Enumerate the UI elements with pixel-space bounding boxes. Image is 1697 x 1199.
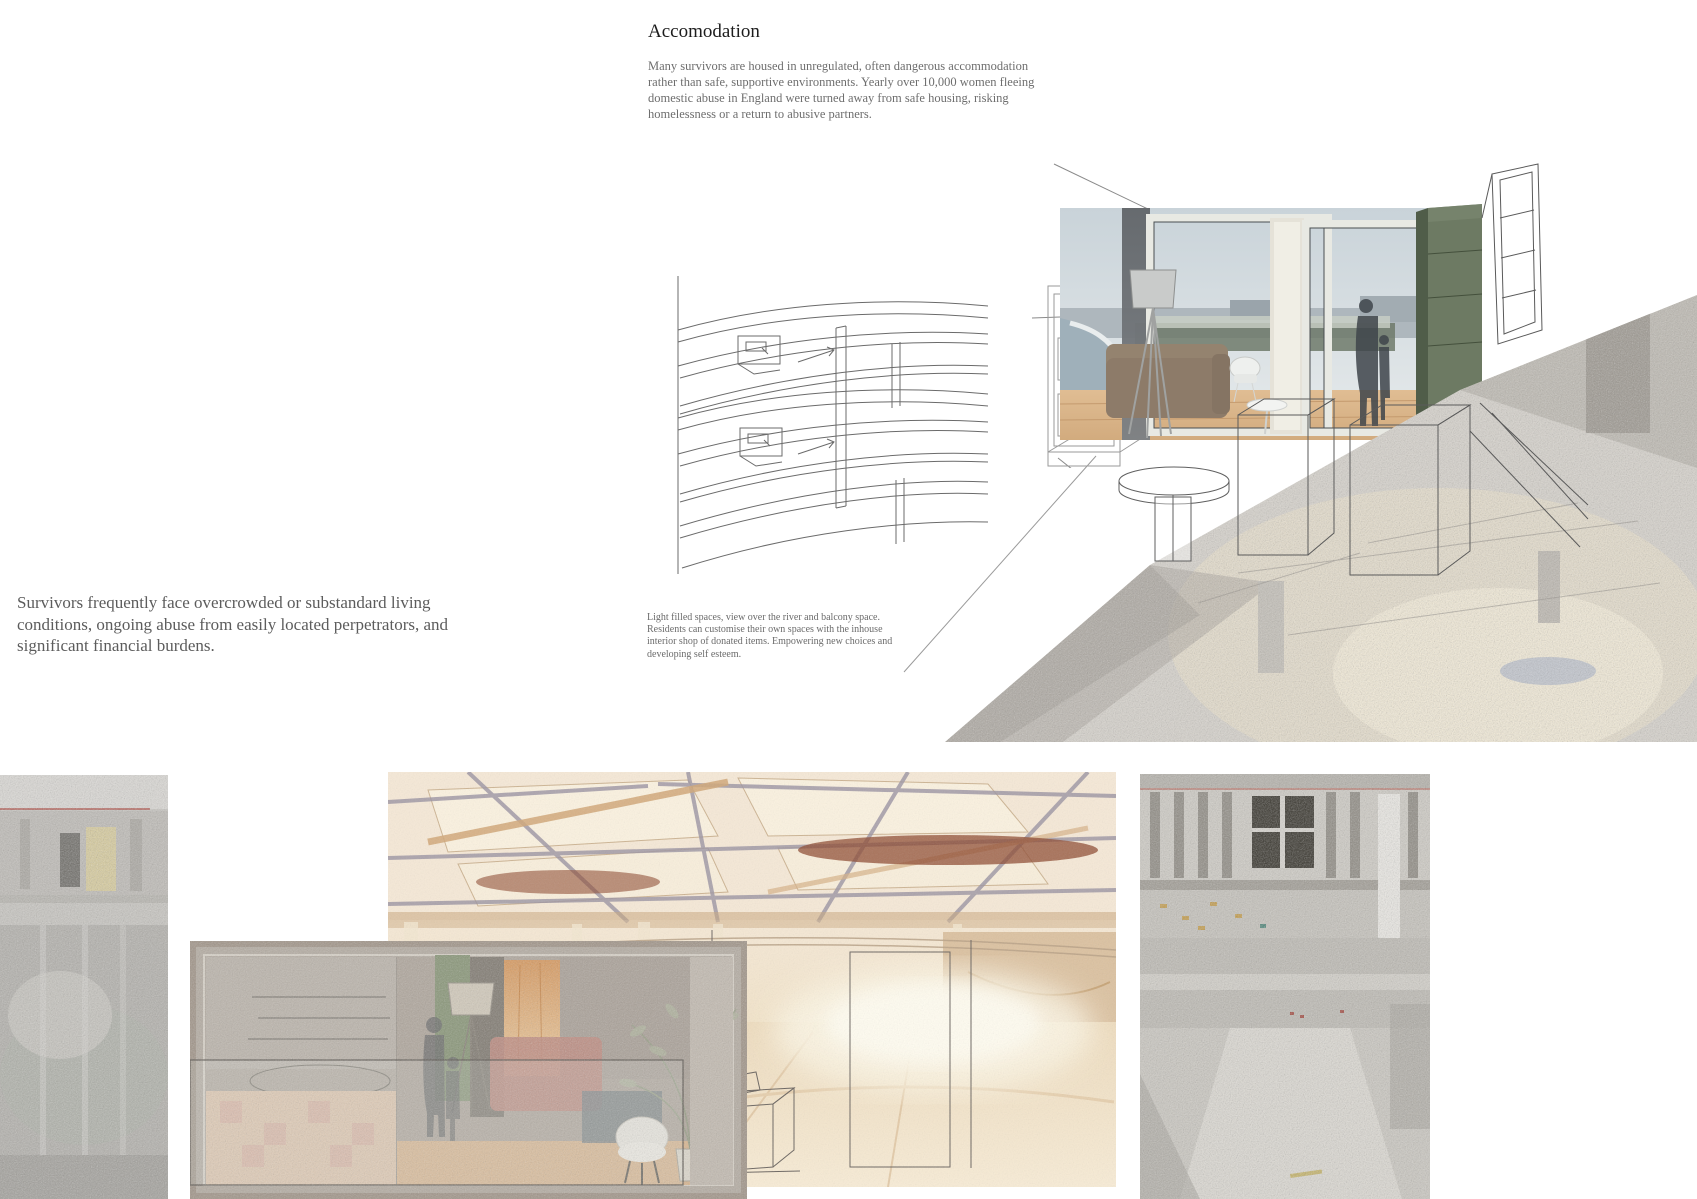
render-caption: Light filled spaces, view over the river… — [647, 612, 899, 661]
statement-paragraph: Survivors frequently face overcrowded or… — [17, 592, 485, 657]
header-block: Accomodation Many survivors are housed i… — [648, 20, 1050, 122]
wardrobe-boxes-lineart — [1230, 385, 1590, 590]
round-table-lineart — [1115, 465, 1237, 575]
interior-elevation-inset — [190, 941, 747, 1199]
unit-furniture-upper — [738, 336, 780, 374]
page-title: Accomodation — [648, 20, 1050, 43]
pointcloud-scan-left — [0, 775, 168, 1199]
intro-paragraph: Many survivors are housed in unregulated… — [648, 58, 1050, 122]
structure-posts — [836, 326, 904, 544]
flow-arrows — [798, 347, 834, 454]
pointcloud-scan-right — [1140, 774, 1430, 1199]
portfolio-page: Accomodation Many survivors are housed i… — [0, 0, 1697, 1199]
